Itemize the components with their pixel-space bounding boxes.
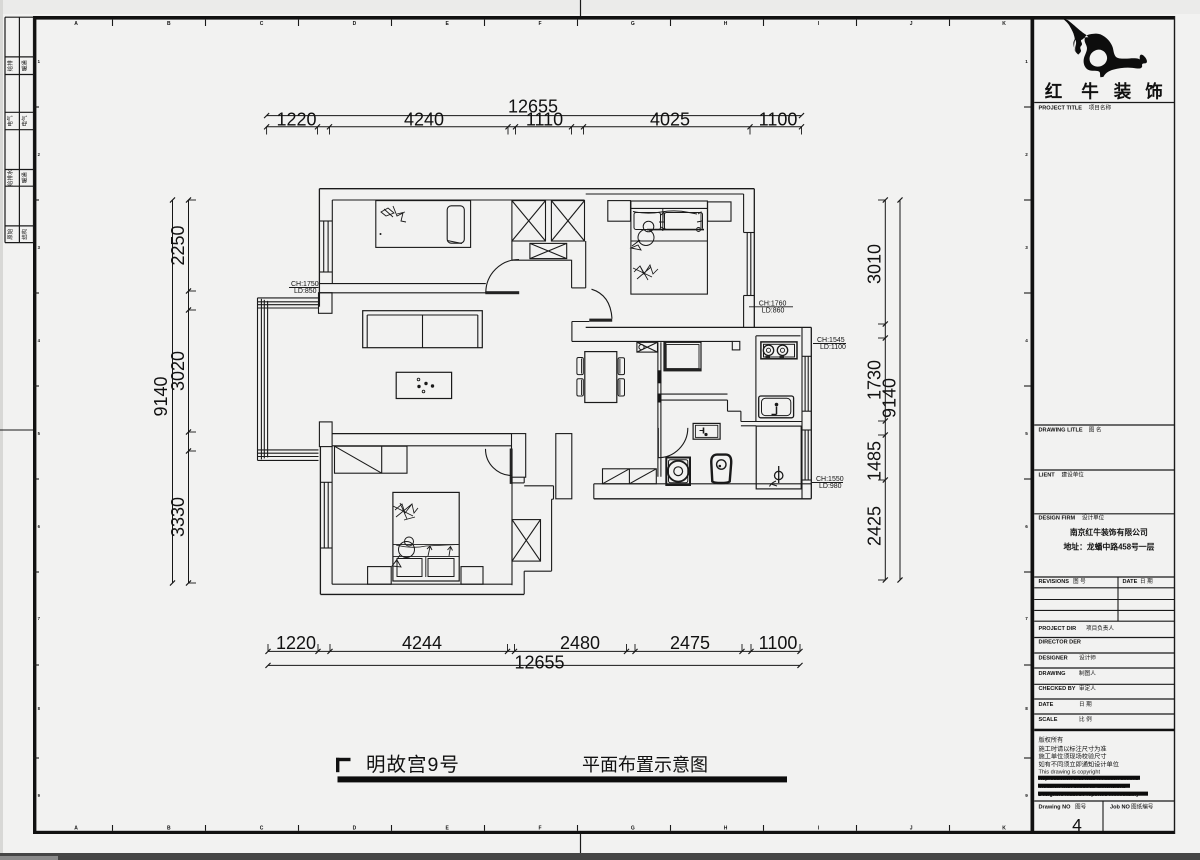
svg-text:3010: 3010	[865, 244, 885, 284]
svg-text:Drawing NO: Drawing NO	[1039, 805, 1072, 811]
svg-text:电气: 电气	[20, 115, 28, 127]
svg-text:F: F	[538, 826, 541, 832]
svg-text:CH:1760: CH:1760	[759, 300, 787, 307]
svg-text:1220: 1220	[276, 633, 316, 653]
svg-text:B: B	[167, 826, 171, 832]
svg-text:A: A	[74, 21, 78, 27]
svg-text:施工单位须现场校验尺寸: 施工单位须现场校验尺寸	[1039, 753, 1107, 761]
svg-text:This drawing is copyright: This drawing is copyright	[1039, 770, 1101, 776]
svg-text:LD:850: LD:850	[294, 288, 317, 295]
svg-text:DATE: DATE	[1039, 702, 1054, 708]
svg-text:结构: 结构	[20, 228, 28, 240]
svg-text:G: G	[631, 21, 635, 27]
svg-text:K: K	[1002, 21, 1006, 27]
svg-text:1: 1	[1025, 59, 1028, 64]
svg-text:明故宫9号: 明故宫9号	[366, 754, 460, 776]
svg-text:H: H	[724, 826, 728, 832]
svg-text:SCALE: SCALE	[1039, 717, 1058, 723]
svg-text:CH:1750: CH:1750	[291, 281, 319, 288]
svg-text:4025: 4025	[650, 109, 690, 129]
svg-text:暖通: 暖通	[20, 60, 28, 72]
svg-text:装: 装	[1113, 82, 1132, 102]
svg-text:LD:860: LD:860	[762, 308, 785, 315]
svg-text:1485: 1485	[865, 441, 885, 481]
svg-text:12655: 12655	[514, 652, 564, 672]
svg-text:B: B	[167, 21, 171, 27]
svg-text:南京红牛装饰有限公司: 南京红牛装饰有限公司	[1070, 527, 1148, 537]
svg-text:建设单位: 建设单位	[1062, 471, 1085, 479]
svg-text:饰: 饰	[1145, 82, 1163, 102]
svg-text:地址：龙蟠中路458号一层: 地址：龙蟠中路458号一层	[1064, 541, 1155, 551]
svg-text:2475: 2475	[670, 633, 710, 653]
svg-text:7: 7	[1025, 616, 1028, 621]
svg-text:项目名称: 项目名称	[1089, 104, 1112, 112]
svg-text:C: C	[260, 826, 264, 832]
svg-text:DESIGN FIRM: DESIGN FIRM	[1039, 516, 1076, 522]
svg-text:图纸编号: 图纸编号	[1131, 803, 1154, 811]
svg-text:CH:1545: CH:1545	[817, 337, 845, 344]
svg-text:原始: 原始	[6, 228, 14, 240]
svg-text:图 名: 图 名	[1089, 426, 1102, 434]
svg-text:CHECKED BY: CHECKED BY	[1039, 686, 1076, 692]
svg-text:制图人: 制图人	[1079, 669, 1096, 677]
svg-text:4: 4	[1072, 815, 1082, 835]
svg-text:设计单位: 设计单位	[1082, 514, 1105, 522]
svg-text:8: 8	[1025, 706, 1028, 711]
svg-text:3330: 3330	[168, 497, 188, 537]
svg-text:6: 6	[1025, 524, 1028, 529]
svg-text:REVISIONS: REVISIONS	[1039, 579, 1070, 585]
svg-text:F: F	[538, 21, 541, 27]
svg-text:2480: 2480	[560, 633, 600, 653]
svg-text:2: 2	[1025, 152, 1028, 157]
svg-text:日 期: 日 期	[1079, 701, 1092, 708]
svg-text:DIRECTOR DER: DIRECTOR DER	[1039, 640, 1081, 646]
svg-text:DESIGNER: DESIGNER	[1039, 656, 1068, 662]
svg-text:J: J	[910, 826, 913, 832]
svg-text:CH:1550: CH:1550	[816, 476, 844, 483]
svg-text:D: D	[353, 826, 357, 832]
svg-text:项目负责人: 项目负责人	[1086, 624, 1114, 632]
svg-text:红: 红	[1045, 82, 1063, 102]
svg-text:LD:1100: LD:1100	[820, 344, 846, 351]
svg-text:1220: 1220	[276, 109, 316, 129]
svg-text:施工时请以标注尺寸为准: 施工时请以标注尺寸为准	[1039, 745, 1107, 753]
svg-text:DATE: DATE	[1123, 579, 1138, 585]
svg-text:暖通: 暖通	[20, 172, 28, 184]
svg-text:J: J	[910, 21, 913, 27]
svg-text:图号: 图号	[1075, 803, 1087, 811]
svg-text:LIENT: LIENT	[1039, 473, 1056, 479]
svg-text:1100: 1100	[759, 109, 798, 129]
svg-text:1110: 1110	[526, 109, 563, 129]
svg-text:1730: 1730	[865, 360, 885, 400]
svg-text:如有不同须立即通知设计单位: 如有不同须立即通知设计单位	[1039, 761, 1119, 769]
svg-text:3: 3	[1025, 245, 1028, 250]
svg-text:Job NO: Job NO	[1110, 805, 1131, 811]
svg-text:设计师: 设计师	[1079, 654, 1096, 662]
svg-text:K: K	[1002, 826, 1006, 832]
svg-text:4244: 4244	[402, 633, 442, 653]
svg-text:比 例: 比 例	[1079, 715, 1092, 723]
svg-text:4: 4	[1025, 338, 1028, 343]
svg-text:G: G	[631, 826, 635, 832]
svg-text:DRAWING: DRAWING	[1039, 671, 1066, 677]
svg-text:3020: 3020	[168, 351, 188, 391]
svg-text:1100: 1100	[759, 633, 798, 653]
svg-text:LD:980: LD:980	[819, 483, 842, 490]
svg-text:2250: 2250	[168, 225, 188, 265]
svg-text:PROJECT DIR: PROJECT DIR	[1039, 626, 1077, 632]
svg-text:2425: 2425	[865, 506, 885, 546]
svg-text:版权所有: 版权所有	[1039, 736, 1064, 744]
svg-text:牛: 牛	[1081, 82, 1099, 102]
svg-text:给排: 给排	[6, 60, 14, 72]
svg-text:DRAWING LITLE: DRAWING LITLE	[1039, 428, 1083, 434]
svg-text:4240: 4240	[404, 109, 444, 129]
svg-text:PROJECT TITLE: PROJECT TITLE	[1039, 106, 1083, 112]
svg-text:A: A	[74, 826, 78, 832]
svg-text:H: H	[724, 21, 728, 27]
svg-text:9: 9	[1025, 793, 1028, 798]
svg-text:电气: 电气	[6, 115, 14, 127]
svg-text:审定人: 审定人	[1079, 684, 1096, 692]
svg-text:给排水: 给排水	[6, 169, 14, 186]
svg-text:图 号: 图 号	[1073, 577, 1086, 585]
svg-text:平面布置示意图: 平面布置示意图	[582, 755, 708, 775]
svg-text:5: 5	[1025, 431, 1028, 436]
svg-text:日 期: 日 期	[1140, 578, 1153, 585]
svg-text:D: D	[353, 21, 357, 27]
svg-text:C: C	[260, 21, 264, 27]
